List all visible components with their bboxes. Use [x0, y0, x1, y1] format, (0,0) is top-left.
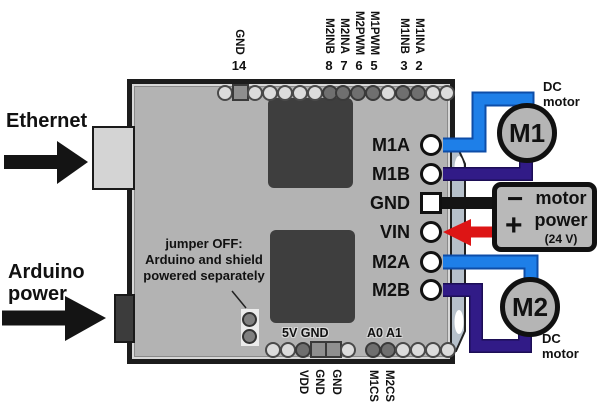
top-pin-number-2: 2 — [407, 58, 431, 73]
top-label-m1inb: M1INB — [398, 18, 410, 54]
label-vin: VIN — [330, 221, 410, 243]
terminal-vin — [420, 221, 442, 243]
bottom-pin — [395, 342, 411, 358]
top-label-m1ina: M1INA — [413, 18, 425, 54]
motor-m1-label: M1 — [509, 118, 545, 149]
arduino-power-label: Arduino power — [8, 261, 85, 305]
terminal-m1b — [420, 163, 442, 185]
motor-m1-caption: DC motor — [543, 79, 580, 109]
motor-m2-caption-line2: motor — [542, 346, 579, 361]
top-pin-2 — [410, 85, 426, 101]
top-pin — [262, 85, 278, 101]
bottom-label-gnd: GND — [313, 369, 325, 395]
silk-a0-a1: A0 A1 — [367, 326, 402, 340]
motor-m1: M1 — [497, 103, 557, 163]
top-pin-6 — [350, 85, 366, 101]
top-pin — [439, 85, 455, 101]
arduino-power-label-line1: Arduino — [8, 261, 85, 283]
bottom-pin — [340, 342, 356, 358]
motor-power-supply: − + motor power (24 V) — [492, 182, 597, 252]
terminal-m2a — [420, 251, 442, 273]
bottom-pin — [280, 342, 296, 358]
jumper-note-line3: powered separately — [136, 268, 272, 284]
psu-name-line2: power — [533, 210, 589, 231]
ethernet-label: Ethernet — [6, 110, 87, 132]
top-pin — [292, 85, 308, 101]
top-pin-5 — [365, 85, 381, 101]
top-pin — [277, 85, 293, 101]
bottom-pin — [425, 342, 441, 358]
label-gnd: GND — [330, 192, 410, 214]
top-label-gnd: GND — [233, 29, 245, 55]
top-pin-7 — [335, 85, 351, 101]
jumper-pin — [242, 312, 257, 327]
top-pin — [217, 85, 233, 101]
top-pin-number-14: 14 — [227, 58, 251, 73]
terminal-m2b — [420, 279, 442, 301]
jumper-note-line2: Arduino and shield — [136, 252, 272, 268]
motor-m2: M2 — [500, 277, 560, 337]
motor-m2-caption: DC motor — [542, 331, 579, 361]
terminal-m1a — [420, 134, 442, 156]
top-label-m2pwm: M2PWM — [353, 11, 365, 55]
bottom-pin — [440, 342, 456, 358]
top-pin-3 — [395, 85, 411, 101]
bottom-label-m1cs: M1CS — [367, 370, 379, 402]
top-label-m2ina: M2INA — [338, 18, 350, 54]
plus-terminal: + — [505, 209, 523, 243]
bottom-pin — [410, 342, 426, 358]
wiring-diagram: GND M2INB M2INA M2PWM M1PWM M1INB M1INA … — [0, 0, 600, 402]
jumper-pin — [242, 329, 257, 344]
psu-name-line1: motor — [533, 188, 589, 209]
bottom-pin-vdd — [295, 342, 311, 358]
arduino-power-label-line2: power — [8, 283, 85, 305]
motor-m2-caption-line1: DC — [542, 331, 579, 346]
label-m2b: M2B — [330, 279, 410, 301]
bottom-pin-a0 — [365, 342, 381, 358]
label-m2a: M2A — [330, 251, 410, 273]
bottom-pin — [265, 342, 281, 358]
mount-hole-bottom — [455, 310, 464, 334]
label-m1a: M1A — [330, 134, 410, 156]
jumper-note-line1: jumper OFF: — [136, 236, 272, 252]
bottom-label-vdd: VDD — [297, 370, 309, 394]
terminal-gnd — [420, 192, 442, 214]
top-label-m2inb: M2INB — [323, 18, 335, 54]
top-pin — [380, 85, 396, 101]
jumper-pointer-line — [232, 291, 246, 308]
top-pin — [307, 85, 323, 101]
motor-m1-caption-line1: DC — [543, 79, 580, 94]
ethernet-arrow-icon — [57, 141, 88, 184]
bottom-label-gnd2: GND — [330, 369, 342, 395]
top-pin-number-5: 5 — [362, 58, 386, 73]
motor-m1-caption-line2: motor — [543, 94, 580, 109]
bottom-pin-a1 — [380, 342, 396, 358]
silk-5v-gnd: 5V GND — [282, 326, 329, 340]
top-label-m1pwm: M1PWM — [368, 11, 380, 55]
psu-voltage: (24 V) — [533, 232, 589, 246]
motor-m2-label: M2 — [512, 292, 548, 323]
top-pin — [247, 85, 263, 101]
label-m1b: M1B — [330, 163, 410, 185]
jumper-note: jumper OFF: Arduino and shield powered s… — [136, 236, 272, 284]
bottom-label-m2cs: M2CS — [383, 370, 395, 402]
